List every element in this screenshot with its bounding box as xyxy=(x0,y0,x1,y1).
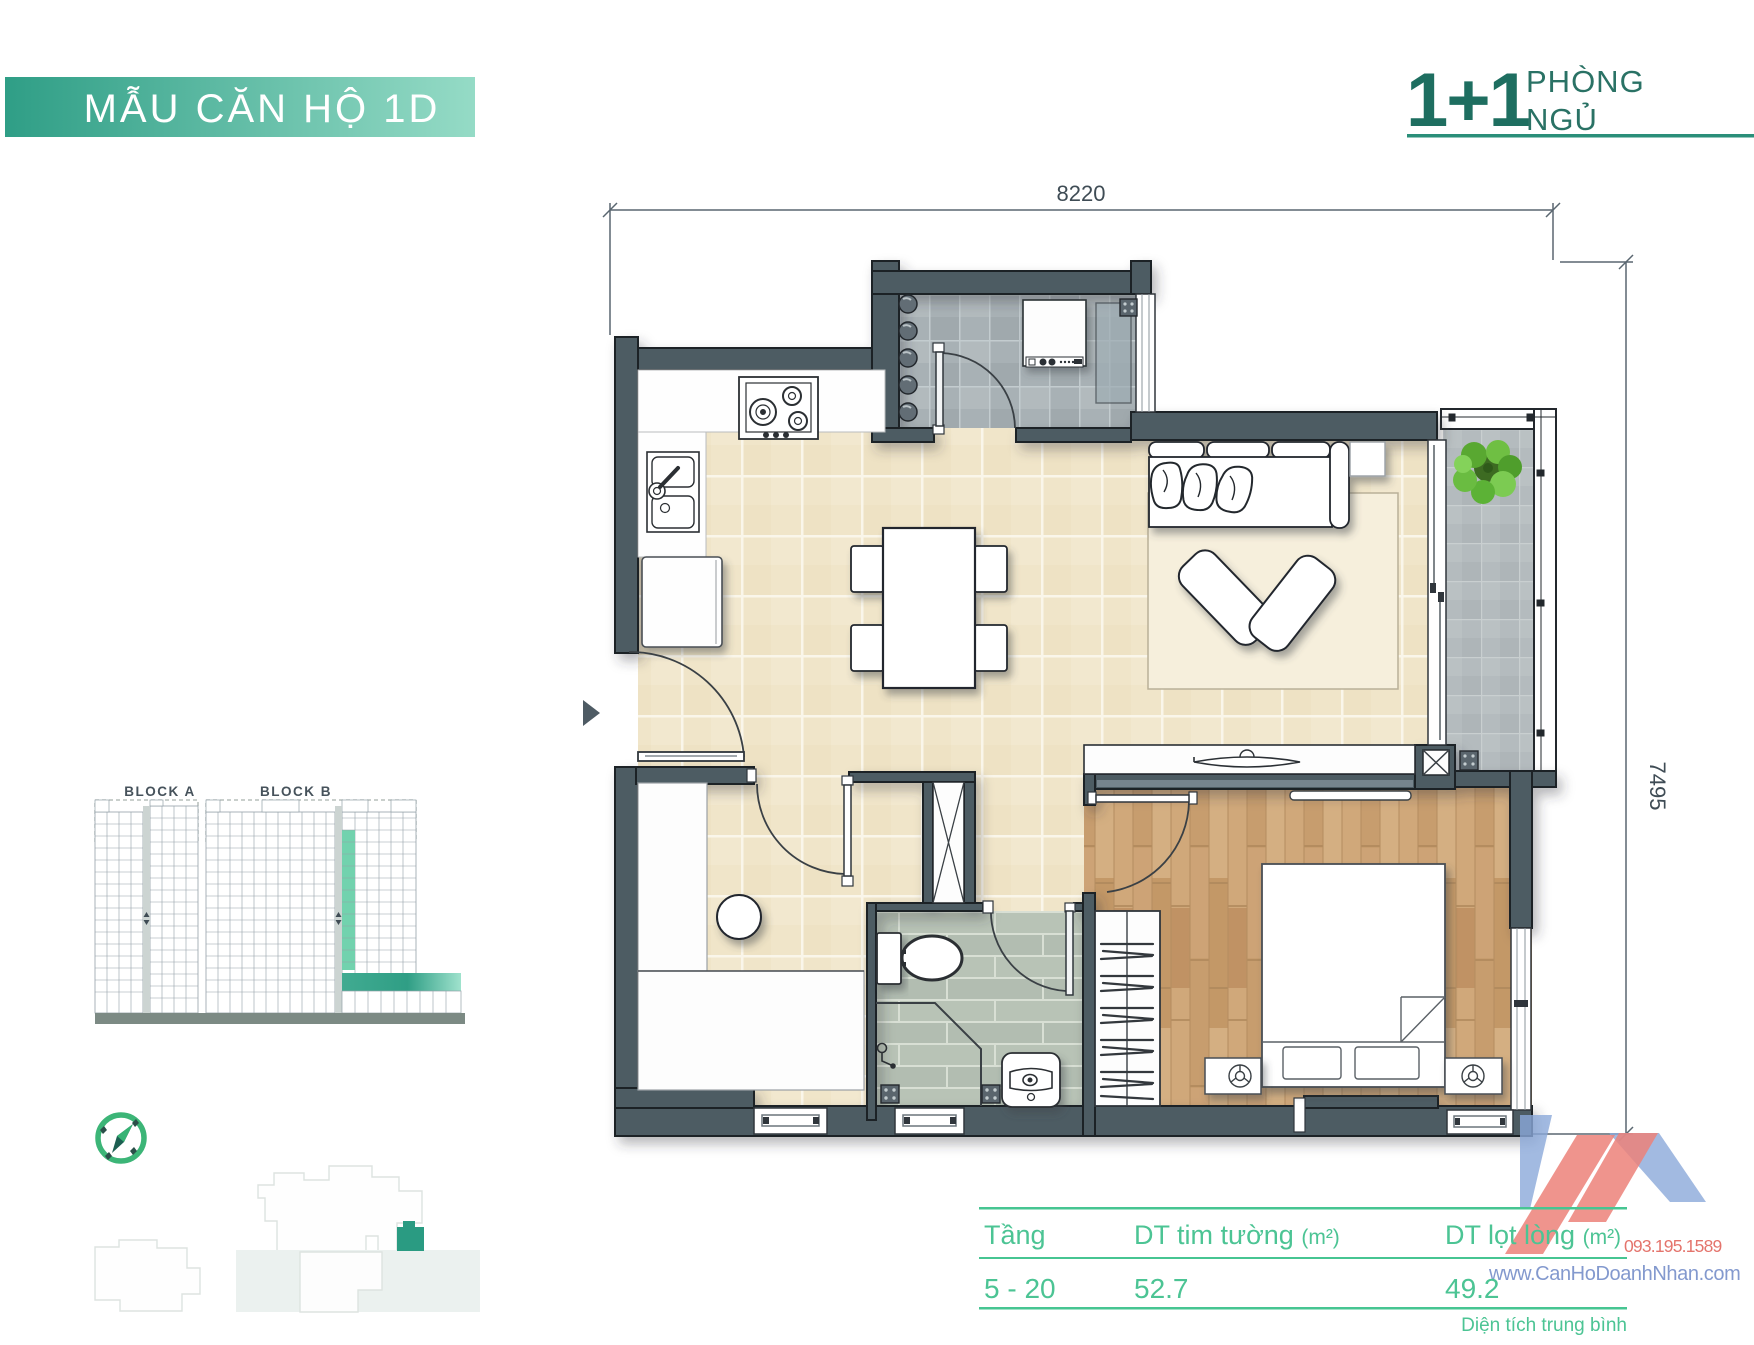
svg-text:49.2: 49.2 xyxy=(1445,1273,1500,1304)
svg-text:BLOCK A: BLOCK A xyxy=(124,784,196,799)
svg-text:BLOCK B: BLOCK B xyxy=(260,784,332,799)
svg-text:MẪU CĂN HỘ 1D: MẪU CĂN HỘ 1D xyxy=(84,85,441,131)
svg-text:www.CanHoDoanhNhan.com: www.CanHoDoanhNhan.com xyxy=(1488,1263,1740,1285)
svg-text:PHÒNG: PHÒNG xyxy=(1526,64,1645,99)
svg-text:5 - 20: 5 - 20 xyxy=(984,1273,1056,1304)
svg-text:1+1: 1+1 xyxy=(1406,58,1530,143)
svg-text:52.7: 52.7 xyxy=(1134,1273,1189,1304)
svg-text:093.195.1589: 093.195.1589 xyxy=(1624,1236,1722,1256)
svg-text:7495: 7495 xyxy=(1645,762,1670,811)
svg-text:8220: 8220 xyxy=(1057,181,1106,206)
svg-text:Tầng: Tầng xyxy=(984,1220,1046,1250)
svg-text:Diện tích trung bình: Diện tích trung bình xyxy=(1461,1315,1627,1336)
svg-text:NGỦ: NGỦ xyxy=(1526,101,1598,137)
